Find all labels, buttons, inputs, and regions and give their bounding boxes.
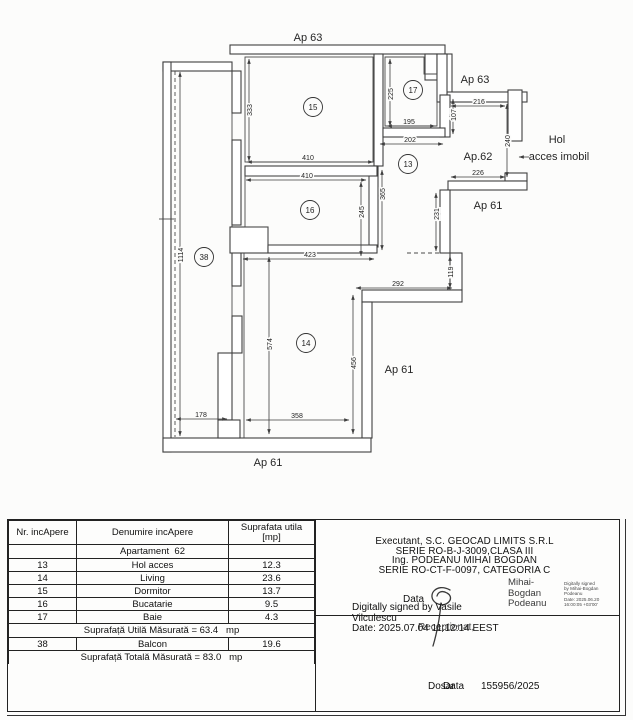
total-area-row: Suprafață Totală Măsurată = 83.0 mp (9, 651, 315, 665)
header-suprafata: Suprafata utila [mp] (229, 521, 315, 545)
room-numbers: 151713163814 (195, 81, 423, 353)
table-row: 14 Living 23.6 (9, 572, 315, 585)
vasile-signature-stamp: Digitally signed by Vasile Vilculescu Da… (352, 603, 499, 635)
vasile-date-line: Date: 2025.07.04 11:12:14 EEST Reception… (352, 624, 499, 635)
dimension-label: 365 (380, 188, 387, 200)
room-number: 15 (309, 103, 318, 112)
apartment-row-empty1 (9, 545, 77, 559)
room-name: Balcon (77, 638, 229, 651)
dimension-label: 333 (247, 104, 254, 116)
data-label-overlap: Data (443, 681, 464, 692)
executant-line4: SERIE RO-CT-F-0097, CATEGORIA C (316, 566, 613, 576)
label-ap63-top: Ap 63 (294, 32, 323, 44)
room-nr: 13 (9, 559, 77, 572)
label-ap61-right: Ap 61 (474, 200, 503, 212)
executant-info: Executant, S.C. GEOCAD LIMITS S.R.L SERI… (316, 537, 613, 575)
room-name: Hol acces (77, 559, 229, 572)
room-name: Living (77, 572, 229, 585)
apartment-label: Apartament 62 (77, 545, 229, 559)
header-denumire: Denumire incApere (77, 521, 229, 545)
room-name: Baie (77, 611, 229, 624)
dimension-label: 226 (472, 170, 484, 177)
dosar-number-line: Dosar Data 155956/2025 (428, 681, 608, 693)
label-ap63-right: Ap 63 (461, 74, 490, 86)
dimension-label: 195 (403, 119, 415, 126)
dimension-label: 410 (302, 155, 314, 162)
room-nr: 15 (9, 585, 77, 598)
dimension-label: 456 (351, 357, 358, 369)
header-suprafata-line2: [mp] (229, 533, 314, 543)
label-ap61-bottom: Ap 61 (254, 457, 283, 469)
access-label-line1: Hol (549, 134, 566, 146)
room-number: 38 (200, 253, 209, 262)
floor-plan: 3334104102251952021072162402263652454231… (0, 0, 633, 519)
executant-signature-block: Executant, S.C. GEOCAD LIMITS S.R.L SERI… (316, 520, 619, 711)
table-header-row: Nr. incApere Denumire incApere Suprafata… (9, 521, 315, 545)
dimension-label: 225 (388, 88, 395, 100)
dimension-label: 574 (267, 338, 274, 350)
receptionat-label: Receptionat, (418, 623, 474, 634)
room-nr: 17 (9, 611, 77, 624)
useful-area-total: Suprafață Utilă Măsurată = 63.4 mp (9, 624, 315, 638)
label-ap62: Ap.62 (464, 151, 493, 163)
room-area: 19.6 (229, 638, 315, 651)
dimension-label: 119 (448, 266, 455, 277)
room-nr: 38 (9, 638, 77, 651)
dimension-label: 245 (359, 206, 366, 218)
header-suprafata-line1: Suprafata utila (229, 523, 314, 533)
room-name: Dormitor (77, 585, 229, 598)
header-nr-incapere: Nr. incApere (9, 521, 77, 545)
stamp-line: 16:00:05 +03'00' (564, 602, 599, 607)
vasile-line1: Digitally signed by Vasile (352, 603, 499, 614)
cadastral-info-block: Nr. incApere Denumire incApere Suprafata… (7, 519, 620, 712)
room-number: 17 (409, 86, 418, 95)
table-row: 17 Baie 4.3 (9, 611, 315, 624)
podeanu-name-line1: Mihai- (508, 578, 546, 589)
areas-table-container: Nr. incApere Denumire incApere Suprafata… (8, 520, 316, 711)
table-row: 15 Dormitor 13.7 (9, 585, 315, 598)
room-number: 16 (306, 206, 315, 215)
dimension-label: 107 (451, 109, 458, 121)
room-area: 12.3 (229, 559, 315, 572)
dimension-label: 231 (434, 208, 441, 220)
podeanu-name-line3: Podeanu (508, 599, 546, 610)
dimension-label: 216 (473, 99, 485, 106)
total-area: Suprafață Totală Măsurată = 83.0 mp (9, 651, 315, 665)
room-area: 4.3 (229, 611, 315, 624)
room-nr: 16 (9, 598, 77, 611)
apartment-row-empty2 (229, 545, 315, 559)
apartment-row: Apartament 62 (9, 545, 315, 559)
scanned-floorplan-document: { "plan": { "neighbor_labels": [ {"text"… (0, 0, 633, 720)
room-area: 23.6 (229, 572, 315, 585)
dimension-label: 358 (291, 413, 303, 420)
label-ap61-middle: Ap 61 (385, 364, 414, 376)
table-row: 16 Bucatarie 9.5 (9, 598, 315, 611)
dimension-label: 240 (505, 135, 512, 147)
dimension-label: 202 (404, 137, 416, 144)
dimension-label: 292 (392, 281, 404, 288)
dimension-label: 178 (195, 412, 207, 419)
room-number: 14 (302, 339, 311, 348)
dimension-label: 423 (304, 252, 316, 259)
useful-area-total-row: Suprafață Utilă Măsurată = 63.4 mp (9, 624, 315, 638)
room-number: 13 (404, 160, 413, 169)
podeanu-signature-name: Mihai- Bogdan Podeanu (508, 578, 546, 610)
access-label-line2: acces imobil (529, 151, 590, 163)
table-row: 13 Hol acces 12.3 (9, 559, 315, 572)
dimension-label: 410 (301, 173, 313, 180)
room-area: 9.5 (229, 598, 315, 611)
room-area: 13.7 (229, 585, 315, 598)
building-access-label: Hol acces imobil (519, 134, 589, 163)
dimension-label: 1114 (178, 248, 185, 263)
table-row-balcon: 38 Balcon 19.6 (9, 638, 315, 651)
areas-table: Nr. incApere Denumire incApere Suprafata… (8, 520, 315, 664)
dosar-number: 155956/2025 (481, 681, 539, 692)
room-name: Bucatarie (77, 598, 229, 611)
room-nr: 14 (9, 572, 77, 585)
podeanu-signature-stamp: Digitally signed by Mihai-Bogdan Podeanu… (564, 581, 599, 607)
